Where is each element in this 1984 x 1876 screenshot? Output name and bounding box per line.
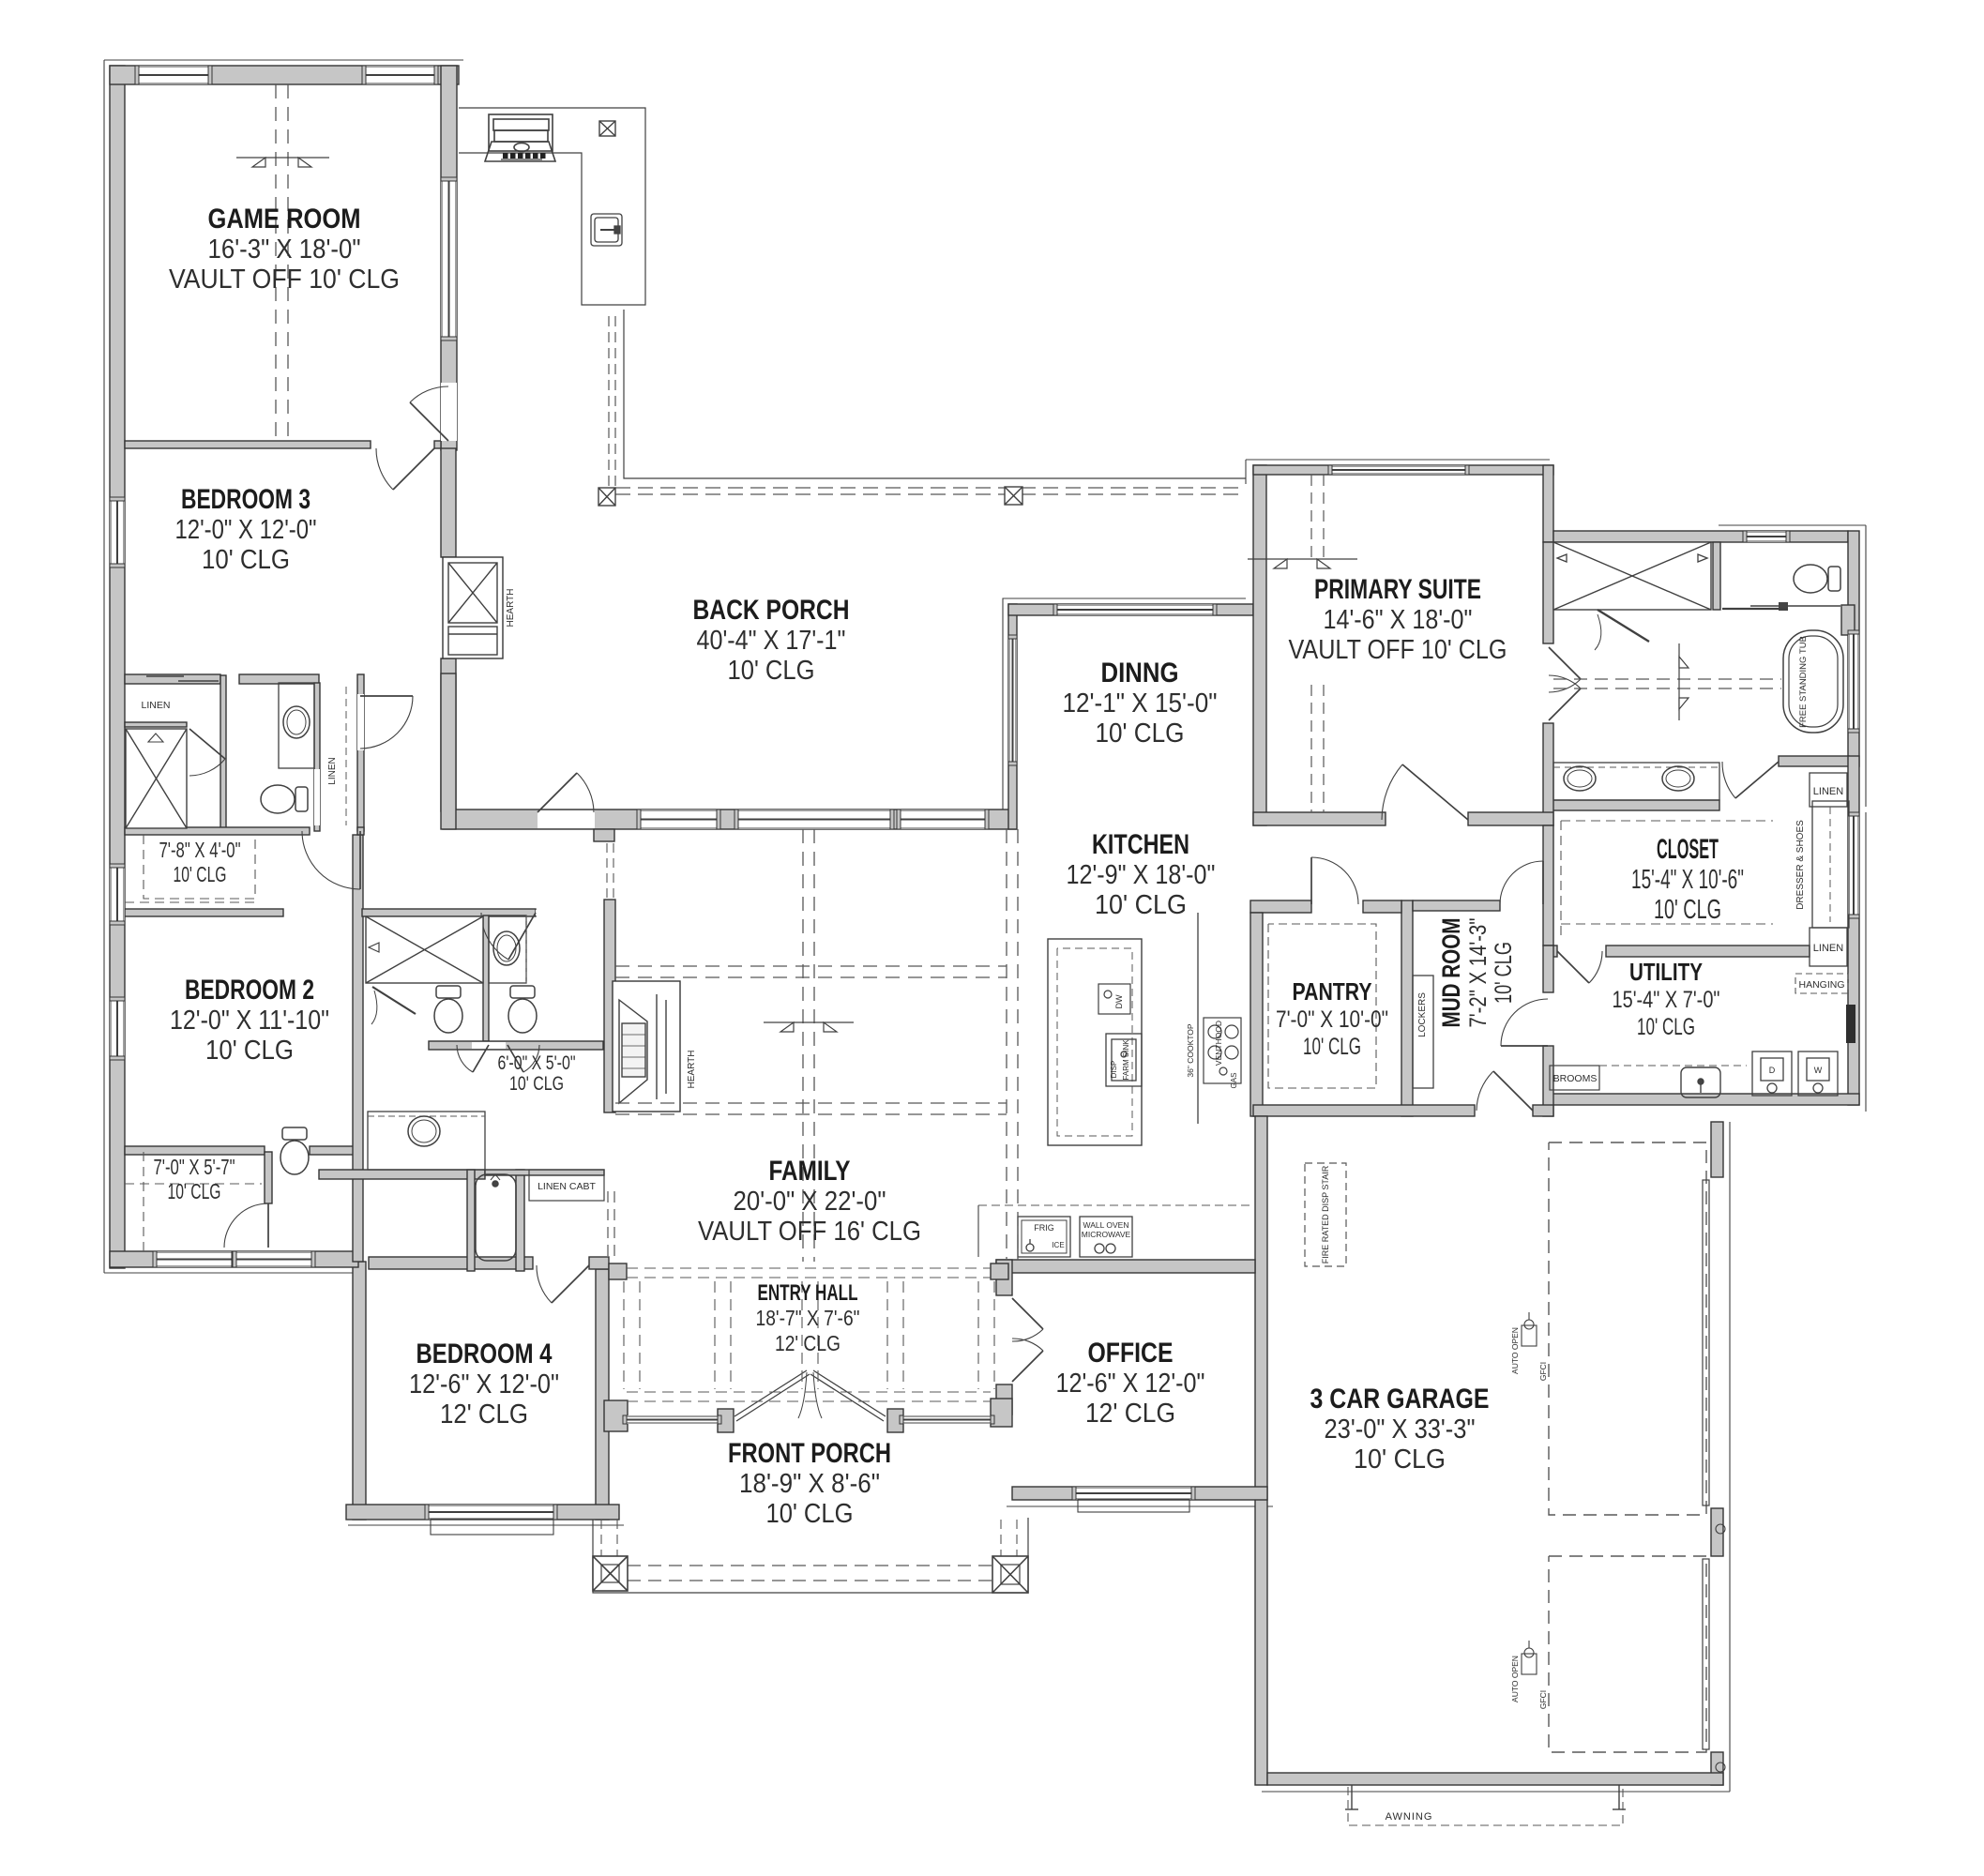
svg-text:12'-6" X 12'-0": 12'-6" X 12'-0" — [1056, 1369, 1205, 1399]
svg-text:LOCKERS: LOCKERS — [1417, 992, 1428, 1037]
svg-text:MICROWAVE: MICROWAVE — [1082, 1230, 1131, 1239]
svg-text:7'-2" X 14'-3": 7'-2" X 14'-3" — [1465, 918, 1492, 1028]
svg-text:14'-6" X 18'-0": 14'-6" X 18'-0" — [1324, 605, 1473, 635]
svg-text:DISP: DISP — [1110, 1061, 1118, 1079]
svg-text:AUTO OPEN: AUTO OPEN — [1510, 1656, 1520, 1702]
svg-text:PANTRY: PANTRY — [1293, 977, 1372, 1006]
svg-text:FRONT PORCH: FRONT PORCH — [728, 1438, 891, 1469]
svg-text:VAULT OFF 10' CLG: VAULT OFF 10' CLG — [169, 265, 400, 295]
svg-text:DRESSER & SHOES: DRESSER & SHOES — [1795, 820, 1806, 910]
svg-text:12'-9" X 18'-0": 12'-9" X 18'-0" — [1067, 860, 1216, 890]
svg-text:VAULT OFF 10' CLG: VAULT OFF 10' CLG — [1289, 635, 1507, 665]
svg-text:10' CLG: 10' CLG — [728, 656, 815, 686]
svg-text:W: W — [1814, 1066, 1823, 1075]
svg-text:BROOMS: BROOMS — [1553, 1073, 1598, 1084]
svg-text:FARM SINK: FARM SINK — [1122, 1039, 1130, 1081]
svg-text:ENTRY HALL: ENTRY HALL — [758, 1280, 858, 1306]
svg-text:23'-0" X 33'-3": 23'-0" X 33'-3" — [1325, 1415, 1476, 1445]
svg-text:UTILITY: UTILITY — [1629, 958, 1703, 986]
svg-text:KITCHEN: KITCHEN — [1092, 829, 1189, 860]
svg-text:D: D — [1769, 1066, 1776, 1075]
svg-text:AUTO OPEN: AUTO OPEN — [1510, 1327, 1520, 1374]
svg-text:AWNING: AWNING — [1386, 1811, 1433, 1823]
svg-text:10' CLG: 10' CLG — [1095, 890, 1187, 920]
svg-text:12'-0" X 11'-10": 12'-0" X 11'-10" — [170, 1006, 329, 1036]
svg-text:GFCI: GFCI — [1538, 1690, 1548, 1709]
svg-text:GFCI: GFCI — [1538, 1362, 1548, 1381]
svg-text:BEDROOM 3: BEDROOM 3 — [181, 484, 310, 515]
svg-text:18'-7" X 7'-6": 18'-7" X 7'-6" — [756, 1306, 860, 1330]
svg-text:FIRE RATED DISP STAIR: FIRE RATED DISP STAIR — [1321, 1165, 1330, 1263]
svg-text:10' CLG: 10' CLG — [1354, 1445, 1446, 1475]
svg-text:DINNG: DINNG — [1101, 658, 1179, 688]
svg-text:12'-0" X 12'-0": 12'-0" X 12'-0" — [175, 515, 317, 545]
svg-text:LINEN: LINEN — [142, 700, 171, 711]
svg-text:12'-1" X 15'-0": 12'-1" X 15'-0" — [1063, 688, 1218, 719]
svg-text:GAS: GAS — [1230, 1073, 1238, 1089]
svg-text:10' CLG: 10' CLG — [766, 1499, 854, 1529]
svg-text:BACK PORCH: BACK PORCH — [693, 595, 850, 626]
svg-text:7'-0" X 10'-0": 7'-0" X 10'-0" — [1276, 1006, 1388, 1033]
svg-text:ICE: ICE — [1052, 1241, 1064, 1249]
svg-text:HANGING: HANGING — [1798, 979, 1844, 991]
svg-text:7'-0" X 5'-7": 7'-0" X 5'-7" — [154, 1155, 235, 1179]
svg-text:10' CLG: 10' CLG — [1654, 895, 1721, 925]
svg-text:BEDROOM 4: BEDROOM 4 — [416, 1339, 553, 1369]
svg-text:15'-4" X 7'-0": 15'-4" X 7'-0" — [1613, 987, 1720, 1013]
svg-text:CLOSET: CLOSET — [1657, 834, 1719, 865]
svg-text:LINEN: LINEN — [1813, 786, 1843, 797]
svg-text:10' CLG: 10' CLG — [1303, 1034, 1361, 1060]
svg-text:VENTHOOD: VENTHOOD — [1214, 1021, 1223, 1066]
svg-text:LINEN: LINEN — [327, 757, 338, 784]
svg-text:BEDROOM 2: BEDROOM 2 — [185, 975, 314, 1006]
svg-text:20'-0" X 22'-0": 20'-0" X 22'-0" — [734, 1187, 886, 1217]
svg-text:VAULT OFF 16' CLG: VAULT OFF 16' CLG — [698, 1217, 921, 1247]
svg-text:16'-3" X 18'-0": 16'-3" X 18'-0" — [208, 234, 361, 265]
svg-text:FREE STANDING TUB: FREE STANDING TUB — [1798, 636, 1809, 728]
svg-text:10' CLG: 10' CLG — [1637, 1014, 1695, 1040]
svg-text:10' CLG: 10' CLG — [174, 862, 227, 886]
svg-text:FAMILY: FAMILY — [769, 1156, 851, 1187]
svg-text:HEARTH: HEARTH — [506, 589, 516, 628]
svg-text:GAME ROOM: GAME ROOM — [208, 204, 361, 234]
svg-text:10' CLG: 10' CLG — [1491, 942, 1517, 1004]
svg-text:HEARTH: HEARTH — [687, 1051, 697, 1089]
svg-text:LINEN CABT: LINEN CABT — [538, 1181, 596, 1192]
svg-text:6'-0" X 5'-0": 6'-0" X 5'-0" — [498, 1052, 576, 1074]
svg-text:WALL OVEN: WALL OVEN — [1083, 1220, 1129, 1230]
svg-text:40'-4" X 17'-1": 40'-4" X 17'-1" — [697, 626, 846, 656]
svg-text:3 CAR GARAGE: 3 CAR GARAGE — [1310, 1384, 1490, 1415]
svg-text:12'-6" X 12'-0": 12'-6" X 12'-0" — [409, 1369, 559, 1399]
svg-text:MUD ROOM: MUD ROOM — [1437, 918, 1465, 1028]
svg-text:12' CLG: 12' CLG — [440, 1399, 528, 1430]
svg-text:FRIG: FRIG — [1034, 1223, 1054, 1233]
svg-text:15'-4" X 10'-6": 15'-4" X 10'-6" — [1631, 865, 1744, 895]
svg-text:10' CLG: 10' CLG — [202, 545, 290, 575]
svg-text:PRIMARY SUITE: PRIMARY SUITE — [1314, 574, 1481, 605]
svg-text:12' CLG: 12' CLG — [1085, 1399, 1175, 1429]
svg-text:18'-9" X 8'-6": 18'-9" X 8'-6" — [739, 1469, 880, 1499]
svg-text:7'-8" X 4'-0": 7'-8" X 4'-0" — [159, 838, 241, 862]
svg-text:10' CLG: 10' CLG — [509, 1073, 564, 1095]
svg-text:10' CLG: 10' CLG — [168, 1179, 221, 1203]
svg-text:10' CLG: 10' CLG — [205, 1036, 294, 1066]
svg-text:12' CLG: 12' CLG — [775, 1331, 841, 1355]
svg-text:10' CLG: 10' CLG — [1096, 719, 1185, 749]
svg-text:OFFICE: OFFICE — [1088, 1338, 1174, 1369]
svg-text:DW: DW — [1114, 994, 1124, 1008]
svg-text:36" COOKTOP: 36" COOKTOP — [1186, 1023, 1195, 1078]
svg-text:LINEN: LINEN — [1813, 943, 1843, 954]
